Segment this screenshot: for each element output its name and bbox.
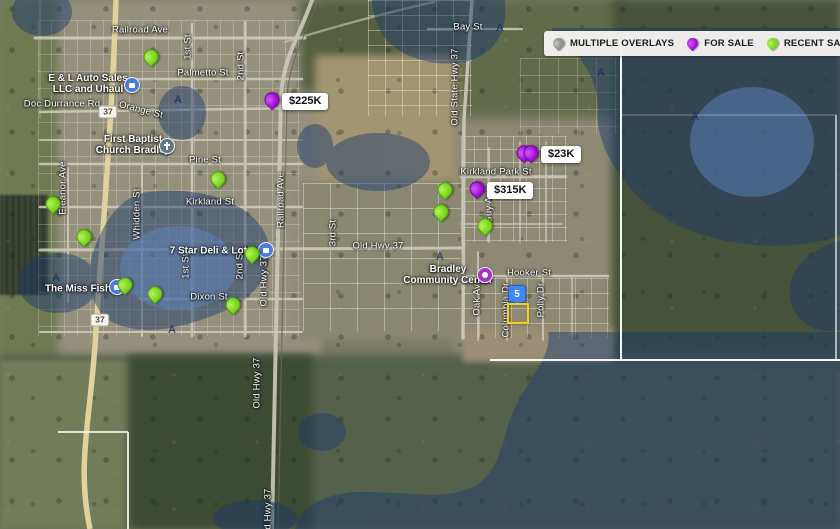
legend-item-label: MULTIPLE OVERLAYS (570, 38, 674, 49)
poi-label-line: The Miss Fish (45, 284, 111, 295)
poi-label[interactable]: E & L Auto SalesLLC and Uhaul (48, 73, 127, 95)
for-sale-pin-icon (685, 36, 701, 52)
street-label: 1st St (183, 34, 194, 60)
poi-label-line: E & L Auto Sales (48, 73, 127, 84)
poi-icon-glyph (482, 272, 488, 278)
flood-zone-label: A (691, 111, 699, 123)
selected-parcel-outline[interactable] (507, 303, 529, 324)
street-label: Old Hwy 37 (352, 241, 403, 252)
street-label: Dixon St (190, 292, 228, 303)
street-label: 1st St (181, 253, 192, 279)
street-label: Old Hwy 37 (259, 255, 270, 306)
street-label: Doc Durrance Rd (24, 99, 100, 110)
street-label: Old Hwy 37 (263, 488, 274, 529)
street-label: Railroad Ave (276, 172, 287, 228)
price-label[interactable]: $315K (487, 182, 533, 199)
business-icon[interactable] (258, 242, 274, 258)
price-label[interactable]: $225K (282, 93, 328, 110)
recent-sale-pin-icon (765, 36, 781, 52)
street-label: Old Hwy 37 (252, 357, 263, 408)
street-label: Kirkland St (186, 197, 234, 208)
street-label: Old State Hwy 37 (450, 48, 461, 125)
poi-icon-glyph (163, 142, 171, 150)
legend-item-recent-sale: RECENT SALE (767, 38, 840, 49)
poi-label[interactable]: The Miss Fish (45, 284, 111, 295)
cluster-marker[interactable]: 5 (508, 285, 526, 303)
flood-zone-label: A (168, 324, 176, 336)
street-label: Palmetto St (177, 68, 228, 79)
flood-zone-label: A (174, 94, 182, 106)
flood-zone-label: A (52, 272, 60, 284)
flood-zone-label: A (436, 251, 444, 263)
poi-icon-glyph (129, 83, 135, 88)
map-legend: MULTIPLE OVERLAYSFOR SALERECENT SALEDEFA… (544, 31, 840, 56)
poi-icon-glyph (263, 248, 269, 253)
legend-item-label: FOR SALE (704, 38, 754, 49)
map-canvas[interactable]: Railroad AvePalmetto St1st St2nd StOrang… (0, 0, 840, 529)
street-label: Pine St (189, 155, 221, 166)
highway-shield: 37 (98, 106, 117, 119)
flood-zone-label: A (496, 22, 504, 34)
street-label: Whidden St (132, 188, 143, 239)
street-label: 2nd St (236, 52, 247, 81)
poi-label-line: LLC and Uhaul (48, 84, 127, 95)
legend-item-for-sale: FOR SALE (687, 38, 754, 49)
business-icon[interactable] (124, 77, 140, 93)
multiple-overlays-pin-icon (551, 36, 567, 52)
street-label: Kirkland Park St (460, 167, 531, 178)
street-label: Polly Dr (536, 283, 547, 318)
highway-shield: 37 (90, 314, 109, 327)
flood-zone-label: A (597, 67, 605, 79)
street-label: Hooker St (507, 268, 551, 279)
street-label: 3rd St (328, 220, 339, 247)
price-label[interactable]: $23K (541, 146, 581, 163)
legend-item-label: RECENT SALE (784, 38, 840, 49)
legend-item-multiple-overlays: MULTIPLE OVERLAYS (553, 38, 674, 49)
community-center-icon[interactable] (477, 267, 493, 283)
church-icon[interactable] (159, 138, 175, 154)
street-label: Railroad Ave (112, 25, 168, 36)
street-label: Bay St (453, 22, 482, 33)
